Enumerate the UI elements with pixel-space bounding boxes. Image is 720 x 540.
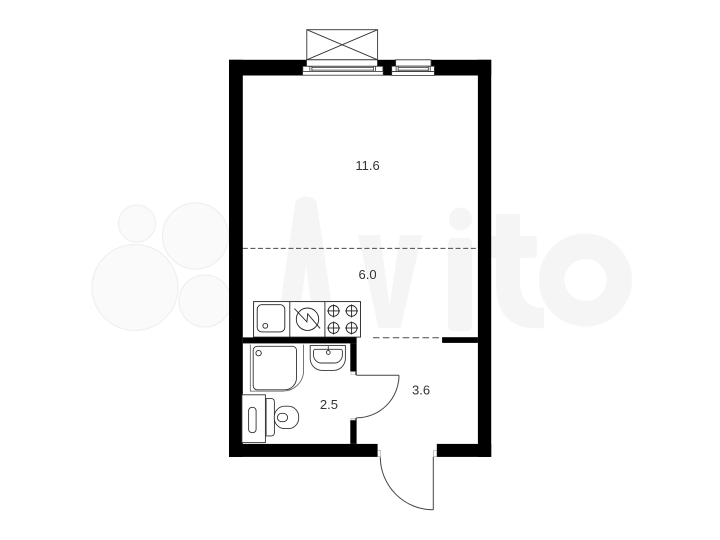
svg-text:3.6: 3.6: [412, 383, 430, 398]
svg-text:6.0: 6.0: [359, 267, 377, 282]
svg-text:11.6: 11.6: [355, 158, 379, 173]
svg-text:2.5: 2.5: [320, 397, 338, 412]
